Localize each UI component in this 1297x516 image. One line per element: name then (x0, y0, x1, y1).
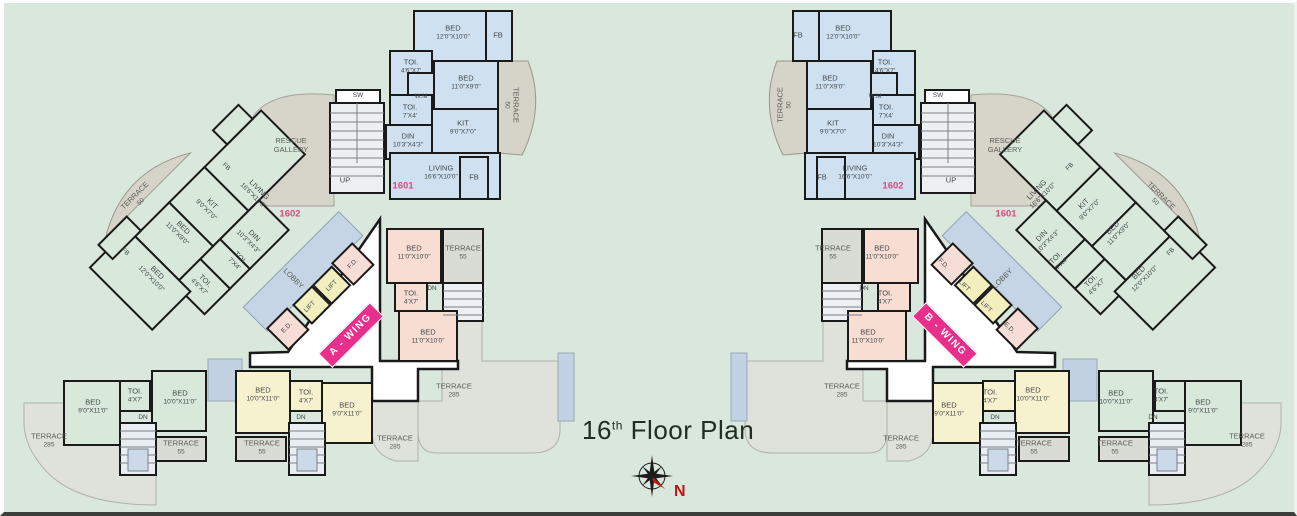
compass-rose-icon (629, 453, 675, 499)
floor-plan-canvas: BED12'0"X10'0" FB TOI.4'6"X7' BED11'0"X9… (0, 0, 1297, 516)
north-label: N (674, 483, 686, 501)
page-title: 16th Floor Plan (582, 415, 754, 446)
